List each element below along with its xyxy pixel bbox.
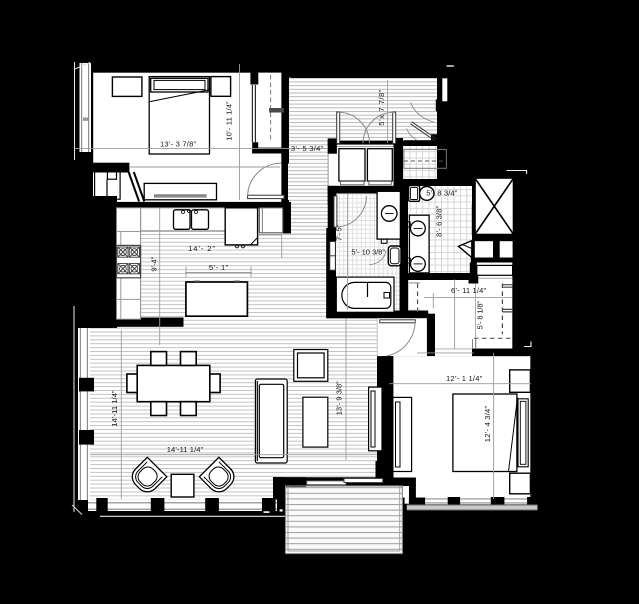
svg-text:7’- 5”: 7’- 5” (335, 225, 344, 241)
svg-text:12’- 1 1/4”: 12’- 1 1/4” (446, 374, 483, 383)
svg-text:5’x 7 7/8”: 5’x 7 7/8” (377, 89, 386, 126)
svg-text:14’- 2”: 14’- 2” (188, 244, 215, 253)
svg-text:6’- 11 1/4”: 6’- 11 1/4” (451, 286, 486, 295)
svg-text:3’- 5 3/4”: 3’- 5 3/4” (291, 144, 324, 153)
svg-text:9’-4”: 9’-4” (149, 256, 158, 271)
svg-text:8’- 6 3/8”: 8’- 6 3/8” (435, 205, 444, 236)
svg-text:5’- 8 3/4”: 5’- 8 3/4” (426, 189, 457, 198)
svg-text:14’-11 1/4”: 14’-11 1/4” (167, 445, 204, 454)
svg-text:13’- 9 3/8”: 13’- 9 3/8” (335, 381, 344, 415)
svg-text:5’- 10 3/8”: 5’- 10 3/8” (351, 248, 385, 257)
svg-text:13’- 3 7/8”: 13’- 3 7/8” (160, 140, 196, 149)
svg-text:5’- 1”: 5’- 1” (209, 263, 229, 272)
svg-text:5’- 8 1/8”: 5’- 8 1/8” (475, 301, 484, 330)
svg-text:12’- 4 3/4”: 12’- 4 3/4” (483, 406, 492, 443)
svg-text:14’-11 1/4”: 14’-11 1/4” (110, 390, 119, 427)
svg-text:10’- 11 1/4”: 10’- 11 1/4” (225, 101, 234, 141)
